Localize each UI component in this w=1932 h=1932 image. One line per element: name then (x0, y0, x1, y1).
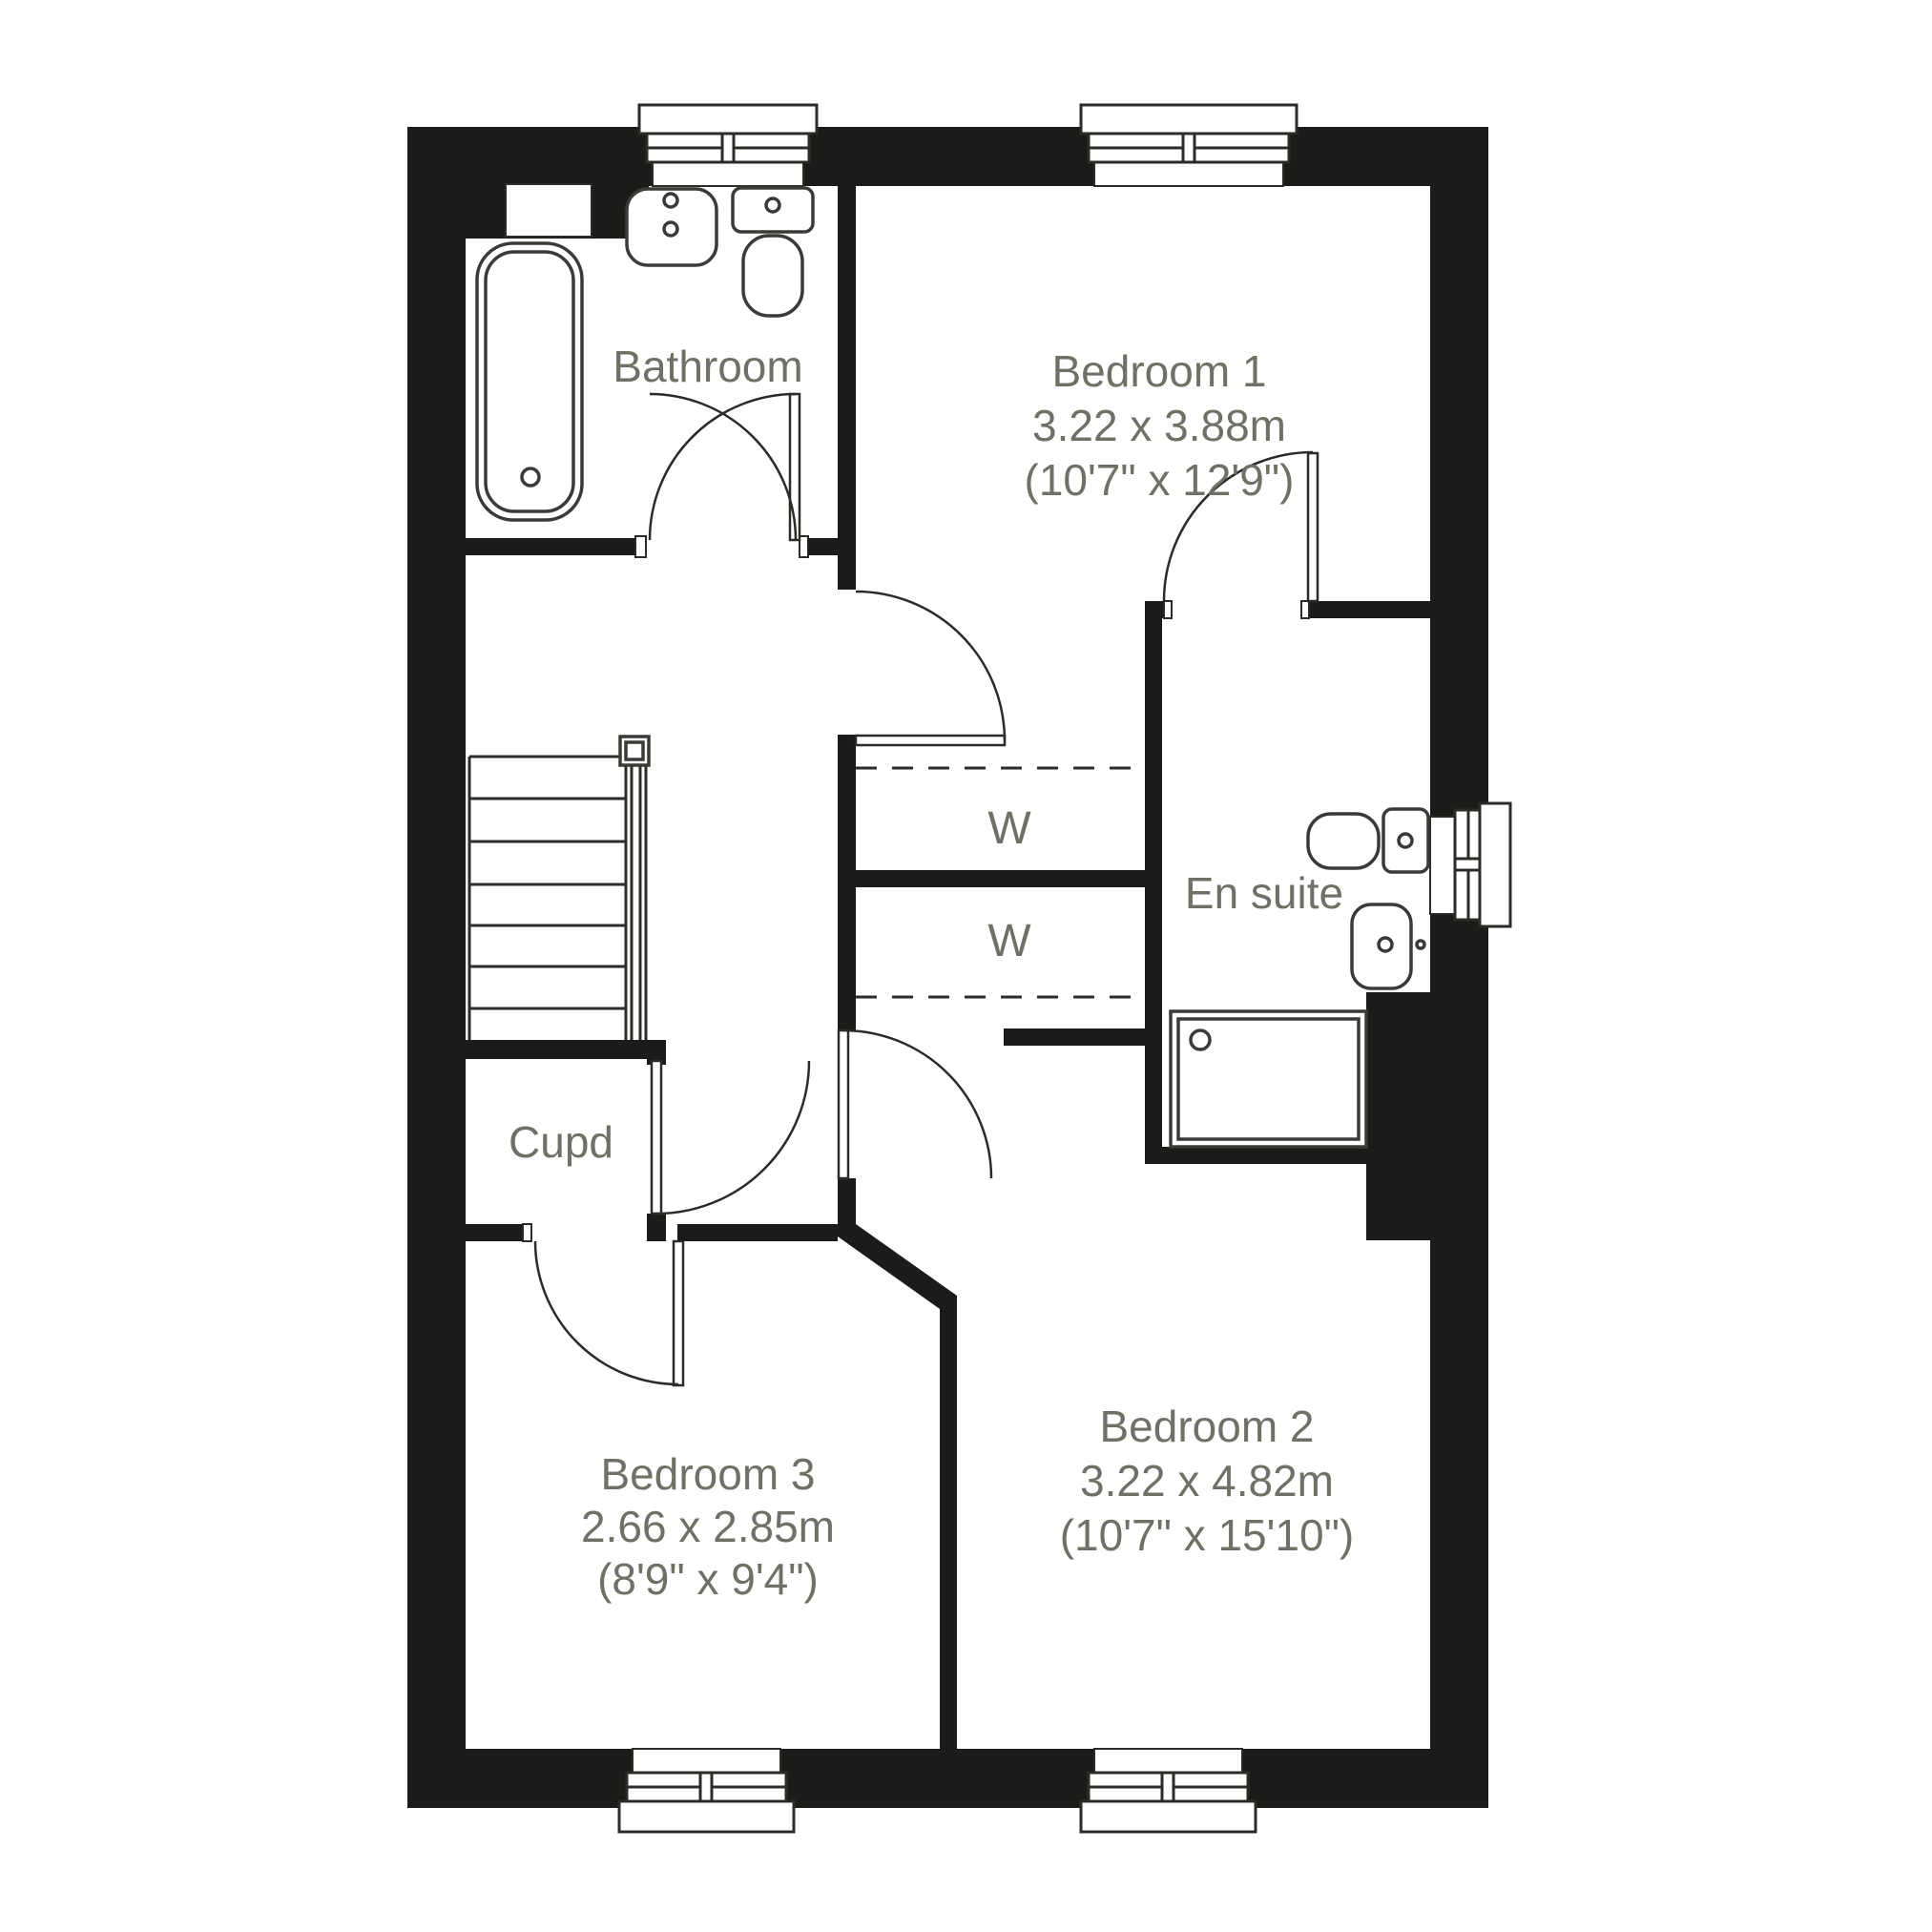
bathroom-label: Bathroom (613, 342, 802, 391)
bedroom1-window (1081, 105, 1297, 186)
bedroom3-label: Bedroom 3 (600, 1449, 815, 1499)
bedroom2-size-metric: 3.22 x 4.82m (1080, 1456, 1334, 1506)
ensuite-toilet-icon (1308, 809, 1428, 872)
bathroom-sink-icon (627, 189, 717, 265)
bathroom-toilet-icon (733, 188, 813, 316)
cupboard-door (652, 1061, 809, 1214)
shower-icon (1171, 1011, 1366, 1147)
bedroom1-door (856, 592, 1005, 745)
stairs-icon (469, 737, 649, 1040)
wardrobe-1-label: W (987, 803, 1031, 854)
bathroom-door (650, 394, 800, 540)
bedroom3-door (535, 1241, 683, 1385)
bedroom2-window (1081, 1749, 1256, 1832)
floorplan-page: Bathroom Bedroom 1 3.22 x 3.88m (10'7" x… (0, 0, 1932, 1932)
bathroom-window (639, 105, 817, 186)
fixtures (469, 188, 1428, 1147)
wardrobe-2-label: W (987, 916, 1031, 966)
bedroom1-size-imperial: (10'7" x 12'9") (1025, 455, 1295, 505)
bedroom2-door (839, 1030, 991, 1178)
bath-icon (477, 243, 582, 520)
bedroom1-label: Bedroom 1 (1051, 346, 1266, 396)
ensuite-label: En suite (1185, 868, 1343, 918)
floorplan-canvas: Bathroom Bedroom 1 3.22 x 3.88m (10'7" x… (0, 0, 1932, 1932)
ensuite-window (1430, 803, 1510, 926)
labels: Bathroom Bedroom 1 3.22 x 3.88m (10'7" x… (509, 342, 1354, 1604)
bedroom3-window (619, 1749, 794, 1832)
bedroom3-size-imperial: (8'9" x 9'4") (597, 1554, 819, 1604)
bedroom2-label: Bedroom 2 (1099, 1402, 1314, 1451)
bedroom2-size-imperial: (10'7" x 15'10") (1060, 1510, 1355, 1560)
cupboard-label: Cupd (509, 1117, 613, 1167)
bedroom1-size-metric: 3.22 x 3.88m (1032, 401, 1286, 450)
ensuite-sink-icon (1352, 904, 1424, 988)
bedroom3-size-metric: 2.66 x 2.85m (581, 1502, 835, 1551)
